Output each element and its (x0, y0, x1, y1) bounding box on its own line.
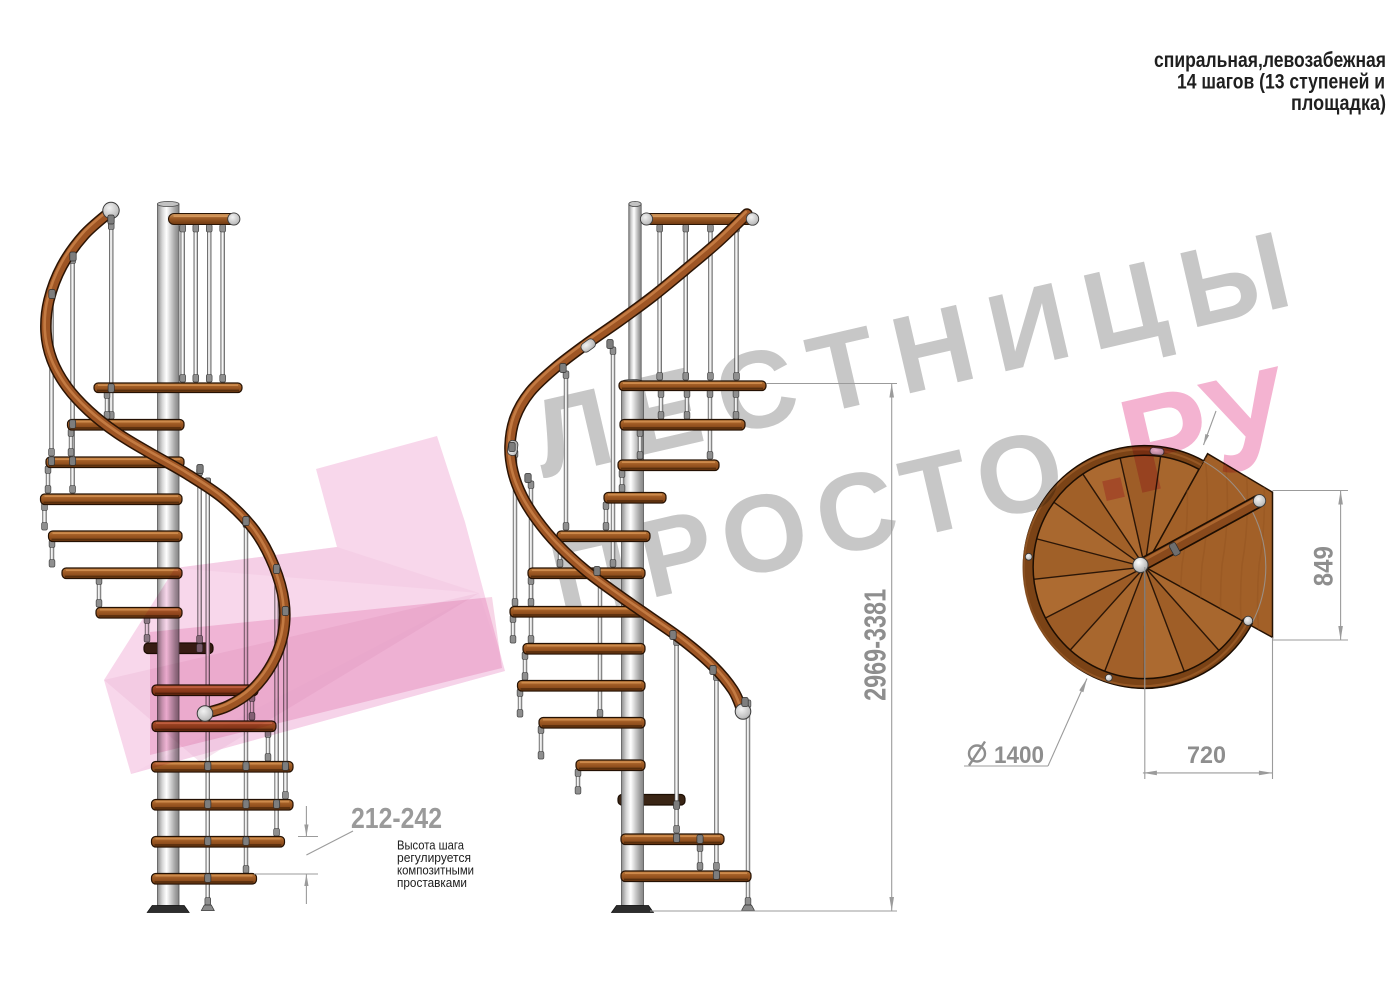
svg-text:проставками: проставками (397, 875, 467, 890)
svg-text:14 шагов (13 ступеней и: 14 шагов (13 ступеней и (1177, 71, 1385, 94)
svg-text:2969-3381: 2969-3381 (858, 589, 893, 701)
svg-text:720: 720 (1187, 742, 1226, 769)
svg-text:212-242: 212-242 (351, 803, 442, 835)
svg-text:849: 849 (1309, 546, 1339, 586)
svg-text:1400: 1400 (994, 742, 1044, 769)
svg-text:площадка): площадка) (1291, 92, 1386, 115)
svg-text:спиральная,левозабежная: спиральная,левозабежная (1154, 49, 1386, 72)
